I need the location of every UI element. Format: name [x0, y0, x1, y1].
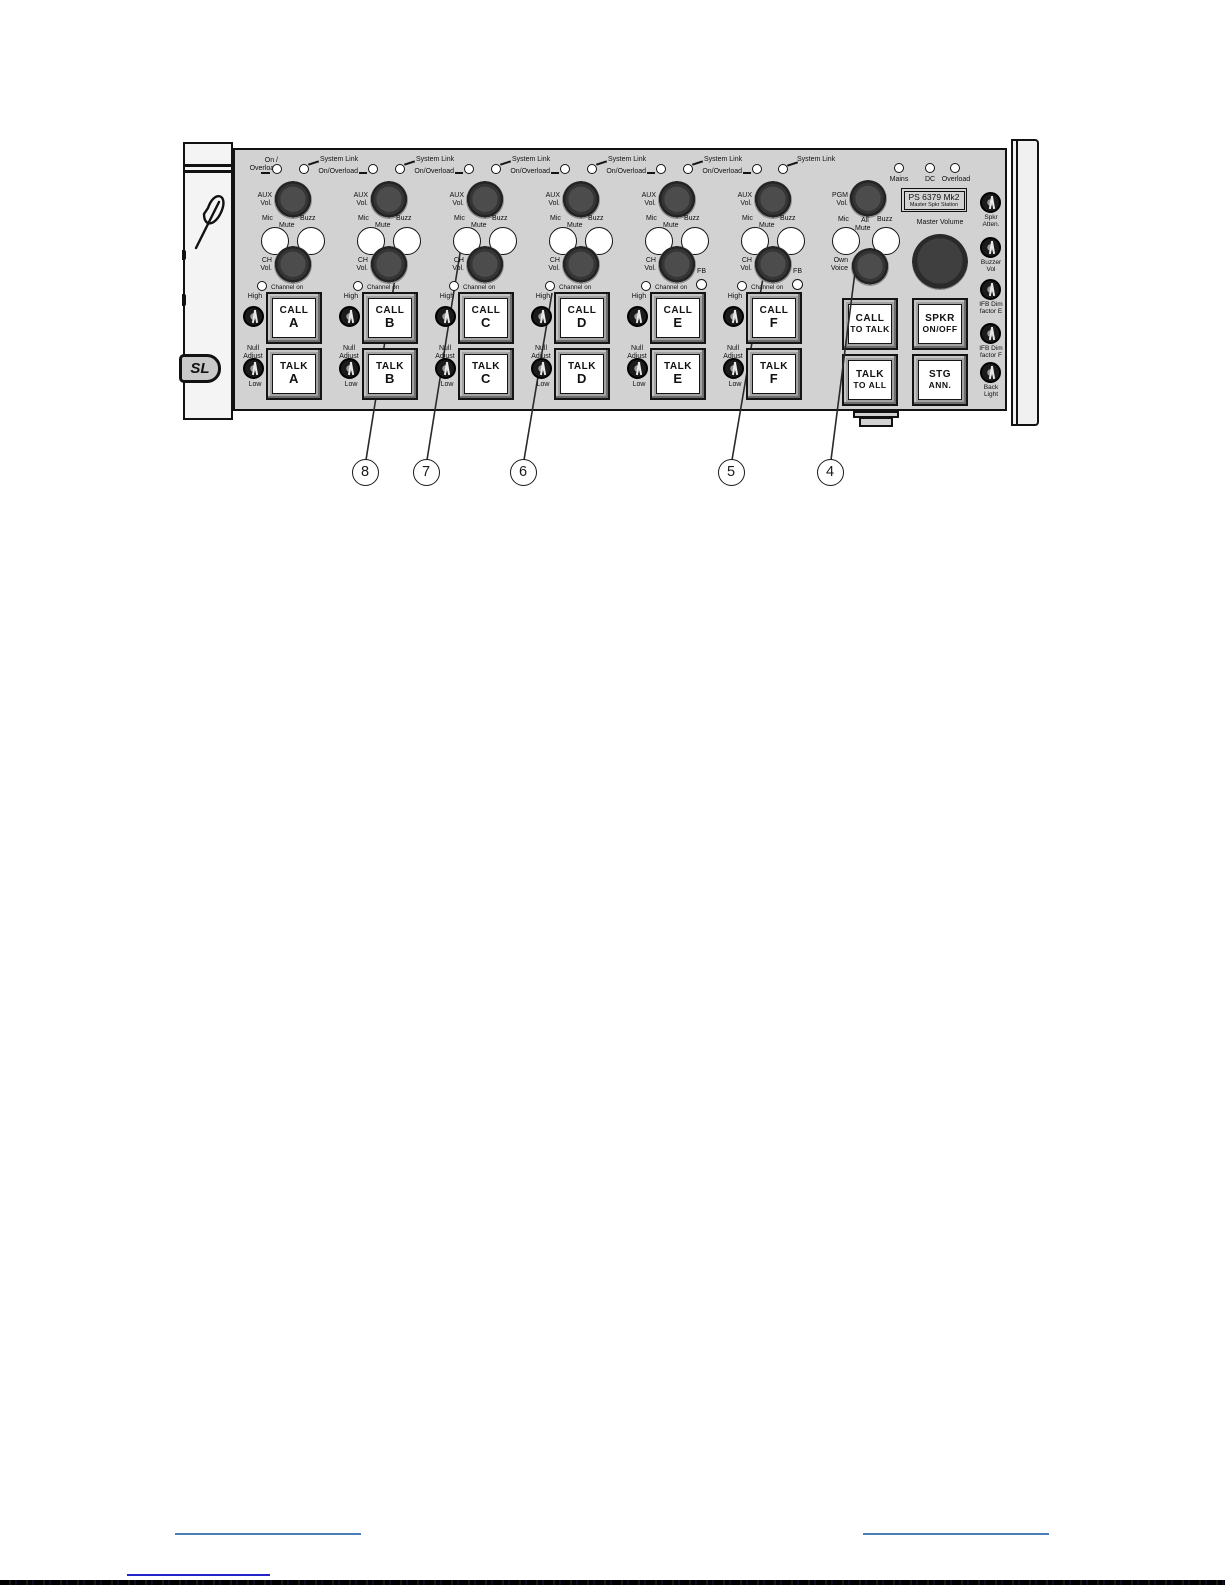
- master-volume-label: Master Volume: [903, 219, 977, 227]
- channel-a-call-button: CALLA: [266, 292, 322, 344]
- channel-d-overload-led: [560, 164, 570, 174]
- channel-f-ch-vol-label: CHVol.: [728, 257, 752, 272]
- model-label-inner: PS 6379 Mk2 Master Spkr Station: [904, 191, 965, 210]
- dc-label: DC: [919, 176, 941, 184]
- channel-c-high-trimmer: [435, 306, 456, 327]
- mains-label: Mains: [884, 176, 914, 184]
- channel-a-ch-vol-label: CHVol.: [248, 257, 272, 272]
- spkr-atten-trimmer: [980, 192, 1001, 213]
- back-light-trimmer: [980, 362, 1001, 383]
- channel-c-on-overload-label: On/Overload: [398, 168, 454, 176]
- channel-e-aux-vol-knob: [658, 181, 696, 219]
- mains-led: [894, 163, 904, 173]
- channel-b-call-button: CALLB: [362, 292, 418, 344]
- channel-b-system-link-label: System Link: [320, 156, 358, 164]
- channel-b-on-overload-label: On/Overload: [302, 168, 358, 176]
- footer-hyperlink-underline[interactable]: [127, 1574, 270, 1576]
- channel-e-call-button: CALLE: [650, 292, 706, 344]
- channel-c-low-label: Low: [437, 381, 457, 389]
- channel-b-ch-vol-knob: [370, 246, 408, 284]
- channel-a-low-trimmer: [243, 358, 264, 379]
- channel-e-ch-vol-label: CHVol.: [632, 257, 656, 272]
- channel-f-buzz-label: Buzz: [780, 215, 796, 223]
- channel-d-buzz-label: Buzz: [588, 215, 604, 223]
- channel-e-aux-vol-label: AUXVol.: [632, 192, 656, 207]
- pgm-vol-knob: [849, 180, 887, 218]
- master-mic-label: Mic: [838, 216, 849, 224]
- channel-c-overload-led: [464, 164, 474, 174]
- channel-b-channel-on-label: Channel on: [367, 284, 399, 292]
- channel-a-talk-button: TALKA: [266, 348, 322, 400]
- channel-e-talk-button: TALKE: [650, 348, 706, 400]
- back-light-label: BackLight: [969, 384, 1013, 398]
- callout-dash: [647, 172, 655, 174]
- channel-f-ch-vol-knob: [754, 246, 792, 284]
- channel-e-system-link-label: System Link: [608, 156, 646, 164]
- model-label-box: PS 6379 Mk2 Master Spkr Station: [901, 188, 967, 212]
- channel-f-high-trimmer: [723, 306, 744, 327]
- channel-a-low-label: Low: [245, 381, 265, 389]
- spkr-on-off-button: SPKRON/OFF: [912, 298, 968, 350]
- channel-f-on-overload-label: On/Overload: [686, 168, 742, 176]
- channel-a-high-label: High: [245, 293, 265, 301]
- callout-4: 4: [817, 459, 844, 486]
- channel-d-channel-on-label: Channel on: [559, 284, 591, 292]
- channel-d-low-label: Low: [533, 381, 553, 389]
- channel-a-buzz-label: Buzz: [300, 215, 316, 223]
- channel-a-mic-label: Mic: [262, 215, 273, 223]
- callout-6: 6: [510, 459, 537, 486]
- neighbor-groove-line: [183, 164, 231, 167]
- channel-f-overload-led: [752, 164, 762, 174]
- callout-8: 8: [352, 459, 379, 486]
- channel-c-call-button: CALLC: [458, 292, 514, 344]
- channel-f-channel-on-label: Channel on: [751, 284, 783, 292]
- buzzer-vol-label: BuzzerVol: [969, 259, 1013, 273]
- channel-c-system-link-label: System Link: [416, 156, 454, 164]
- channel-f-aux-vol-knob: [754, 181, 792, 219]
- master-volume-knob: [912, 234, 968, 290]
- callout-dash: [743, 172, 751, 174]
- channel-b-ch-vol-label: CHVol.: [344, 257, 368, 272]
- footer-rule-right: [863, 1533, 1049, 1535]
- callout-dash: [455, 172, 463, 174]
- channel-e-low-trimmer: [627, 358, 648, 379]
- channel-e-channel-on-label: Channel on: [655, 284, 687, 292]
- channel-b-talk-button: TALKB: [362, 348, 418, 400]
- stg-line2: ANN.: [929, 381, 952, 390]
- channel-e-buzz-label: Buzz: [684, 215, 700, 223]
- channel-c-ch-vol-label: CHVol.: [440, 257, 464, 272]
- channel-e-low-label: Low: [629, 381, 649, 389]
- channel-d-high-label: High: [533, 293, 553, 301]
- channel-a-high-trimmer: [243, 306, 264, 327]
- channel-b-mic-label: Mic: [358, 215, 369, 223]
- channel-d-low-trimmer: [531, 358, 552, 379]
- callout-dash: [359, 172, 367, 174]
- talk-to-all-line2: TO ALL: [853, 381, 886, 390]
- channel-e-mic-label: Mic: [646, 215, 657, 223]
- channel-b-buzz-label: Buzz: [396, 215, 412, 223]
- talk-to-all-button: TALKTO ALL: [842, 354, 898, 406]
- spkr-atten-label: SpkrAtten.: [969, 214, 1013, 228]
- channel-d-on-overload-label: On/Overload: [494, 168, 550, 176]
- callout-dash: [551, 172, 559, 174]
- channel-f-mic-label: Mic: [742, 215, 753, 223]
- channel-c-low-trimmer: [435, 358, 456, 379]
- channel-c-talk-button: TALKC: [458, 348, 514, 400]
- channel-b-low-trimmer: [339, 358, 360, 379]
- master-all-label: All: [861, 217, 869, 225]
- chassis-foot: [859, 417, 893, 427]
- neighbor-groove-line: [183, 170, 231, 173]
- channel-a-channel-on-label: Channel on: [271, 284, 303, 292]
- channel-f-low-trimmer: [723, 358, 744, 379]
- neighbor-panel-mark: [182, 294, 186, 306]
- channel-a-channel-on-led: [257, 281, 267, 291]
- channel-c-channel-on-label: Channel on: [463, 284, 495, 292]
- master-mute-label: Mute: [855, 225, 871, 233]
- model-name: PS 6379 Mk2: [907, 193, 962, 202]
- pgm-vol-label: PGMVol.: [824, 192, 848, 207]
- own-label-line1: Own: [834, 257, 848, 264]
- channel-f-talk-button: TALKF: [746, 348, 802, 400]
- channel-d-system-link-label: System Link: [512, 156, 550, 164]
- channel-d-ch-vol-knob: [562, 246, 600, 284]
- neighbor-panel-mark: [182, 250, 186, 260]
- page-bottom-edge: [0, 1580, 1225, 1585]
- ifb-dim-factor-e-trimmer: [980, 279, 1001, 300]
- brand-signature-logo: [186, 186, 228, 256]
- channel-d-aux-vol-knob: [562, 181, 600, 219]
- own-label-line2: Voice: [831, 265, 848, 272]
- channel-d-channel-on-led: [545, 281, 555, 291]
- channel-b-high-label: High: [341, 293, 361, 301]
- channel-f-fb-led: [792, 279, 803, 290]
- channel-f-channel-on-led: [737, 281, 747, 291]
- channel-f-high-label: High: [725, 293, 745, 301]
- model-subtitle: Master Spkr Station: [907, 202, 962, 208]
- channel-e-on-overload-label: On/Overload: [590, 168, 646, 176]
- call-to-talk-line2: TO TALK: [850, 325, 890, 334]
- channel-f-low-label: Low: [725, 381, 745, 389]
- callout-7: 7: [413, 459, 440, 486]
- callout-dash: [261, 172, 270, 174]
- channel-e-fb-led: [696, 279, 707, 290]
- channel-e-fb-label: FB: [690, 268, 706, 276]
- footer-rule-left: [175, 1533, 361, 1535]
- channel-b-high-trimmer: [339, 306, 360, 327]
- dc-led: [925, 163, 935, 173]
- stg-ann-button: STGANN.: [912, 354, 968, 406]
- channel-e-high-trimmer: [627, 306, 648, 327]
- channel-a-aux-vol-label: AUXVol.: [248, 192, 272, 207]
- pgm-label-line2: Vol.: [836, 200, 848, 207]
- channel-d-high-trimmer: [531, 306, 552, 327]
- channel-c-aux-vol-knob: [466, 181, 504, 219]
- channel-b-overload-led: [368, 164, 378, 174]
- channel-e-ch-vol-knob: [658, 246, 696, 284]
- channel-b-aux-vol-label: AUXVol.: [344, 192, 368, 207]
- buzzer-vol-trimmer: [980, 237, 1001, 258]
- channel-d-aux-vol-label: AUXVol.: [536, 192, 560, 207]
- channel-c-mic-label: Mic: [454, 215, 465, 223]
- channel-b-aux-vol-knob: [370, 181, 408, 219]
- channel-f-system-link-label: System Link: [704, 156, 742, 164]
- channel-e-overload-led: [656, 164, 666, 174]
- overload-label: Overload: [940, 176, 972, 184]
- channel-d-call-button: CALLD: [554, 292, 610, 344]
- master-mic-button: [832, 227, 860, 255]
- channel-c-buzz-label: Buzz: [492, 215, 508, 223]
- channel-c-aux-vol-label: AUXVol.: [440, 192, 464, 207]
- channel-b-low-label: Low: [341, 381, 361, 389]
- channel-d-talk-button: TALKD: [554, 348, 610, 400]
- pgm-label-line1: PGM: [832, 192, 848, 199]
- own-voice-label: OwnVoice: [824, 257, 848, 272]
- channel-e-high-label: High: [629, 293, 649, 301]
- sl-logo-badge: SL: [179, 354, 221, 383]
- channel-c-high-label: High: [437, 293, 457, 301]
- channel-d-mic-label: Mic: [550, 215, 561, 223]
- ifb-dim-factor-f-label: IFB Dimfactor F: [969, 345, 1013, 359]
- call-to-talk-button: CALLTO TALK: [842, 298, 898, 350]
- spkr-line2: ON/OFF: [922, 325, 957, 334]
- document-page: SL System Link Mains DC Overload PGMVol.…: [0, 0, 1225, 1585]
- channel-f-aux-vol-label: AUXVol.: [728, 192, 752, 207]
- overload-led: [950, 163, 960, 173]
- channel-f-call-button: CALLF: [746, 292, 802, 344]
- channel-c-ch-vol-knob: [466, 246, 504, 284]
- master-system-link-label: System Link: [797, 156, 835, 164]
- channel-c-channel-on-led: [449, 281, 459, 291]
- channel-b-channel-on-led: [353, 281, 363, 291]
- channel-f-fb-label: FB: [786, 268, 802, 276]
- ifb-dim-factor-e-label: IFB Dimfactor E: [969, 301, 1013, 315]
- channel-e-channel-on-led: [641, 281, 651, 291]
- channel-a-aux-vol-knob: [274, 181, 312, 219]
- master-buzz-label: Buzz: [877, 216, 893, 224]
- callout-5: 5: [718, 459, 745, 486]
- rack-ear-edge-line: [1016, 139, 1018, 426]
- channel-d-ch-vol-label: CHVol.: [536, 257, 560, 272]
- ifb-dim-factor-f-trimmer: [980, 323, 1001, 344]
- own-voice-knob: [851, 248, 889, 286]
- channel-a-ch-vol-knob: [274, 246, 312, 284]
- channel-a-overload-led: [272, 164, 282, 174]
